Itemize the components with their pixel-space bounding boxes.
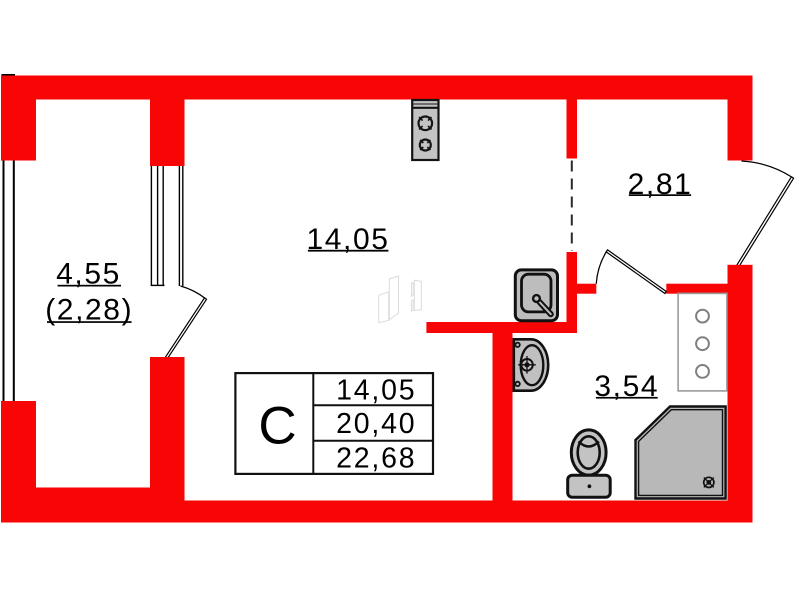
- svg-text:20,40: 20,40: [336, 408, 416, 440]
- svg-text:С: С: [258, 397, 296, 456]
- svg-text:14,05: 14,05: [336, 374, 416, 406]
- svg-text:22,68: 22,68: [336, 443, 416, 475]
